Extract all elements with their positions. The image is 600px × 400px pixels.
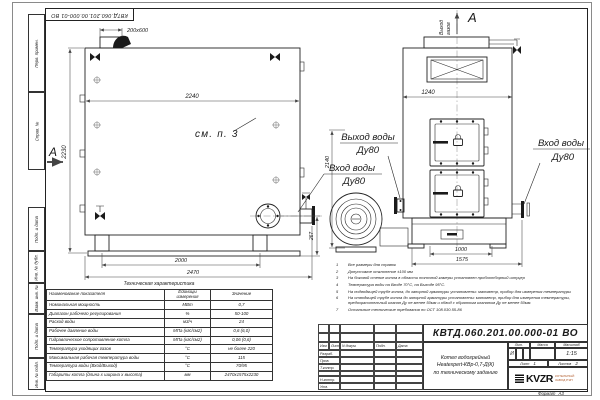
spec-cell: 0,06 (0,6) [211, 336, 273, 345]
drain-valve [95, 206, 105, 220]
titleblock-scale-value: 1:15 [555, 348, 588, 360]
side-view: см. п. 3 А 200х600 2240 2230 2000 [47, 28, 322, 280]
tb-col-izm: Изм [318, 342, 329, 350]
spec-row: Гидравлическое сопротивление котлаМПа (к… [47, 336, 273, 345]
tb-cell [396, 333, 423, 342]
hinge-tab [80, 205, 85, 212]
format-value: А3 [558, 391, 563, 396]
tb-cell [340, 376, 374, 383]
tb-cell [340, 364, 374, 371]
note-text: Допустимое отклонение ±100 мм [348, 270, 592, 275]
kvzr-logo-icon [515, 374, 524, 383]
tb-col-podp: Подп. [374, 342, 396, 350]
logo-sub-line: ЗАВОД РЭП [555, 378, 573, 382]
tb-cell [340, 357, 374, 364]
tb-cell [374, 350, 396, 357]
spec-cell: 50-100 [211, 310, 273, 319]
tb-row-utv: Утв. [318, 383, 340, 390]
tb-cell [523, 348, 530, 360]
note-text: Остальные технические требования по ОСТ … [348, 308, 592, 313]
dim-flue: 200х600 [126, 28, 149, 34]
tb-cell [374, 376, 396, 383]
tb-row-razrab: Разраб. [318, 350, 340, 357]
note-text: На отводящей трубе котла до запорной арм… [348, 296, 592, 305]
tb-col-list: Лист [329, 342, 340, 350]
spec-row: Расход водым3/ч24 [47, 318, 273, 327]
note-number: 5 [336, 290, 348, 295]
note-text: Температура воды на Входе 70°С, на Выход… [348, 283, 592, 288]
tb-cell [340, 383, 374, 390]
tb-cell [318, 333, 329, 342]
water-out-title: Выход воды [341, 132, 394, 143]
spec-cell: не более 220 [211, 345, 273, 354]
tb-col-data: Дата [396, 342, 423, 350]
spec-row: Номинальная мощностьМВт0,7 [47, 301, 273, 310]
dim-front-base-inner: 1000 [455, 247, 468, 253]
spec-cell: мм [165, 371, 211, 380]
tb-cell [396, 383, 423, 390]
flue-collar [424, 37, 489, 48]
see-note-label: см. п. 3 [195, 129, 239, 140]
note-number: 2 [336, 270, 348, 275]
note-item: 7Остальные технические требования по ОСТ… [336, 308, 592, 313]
kvzr-logo-subtext: КОТЕЛЬНЫЙ ЗАВОД РЭП [555, 375, 581, 382]
titleblock-lit-value: И [508, 348, 516, 360]
spec-header-name: Наименование показателя [47, 289, 165, 301]
spec-cell: МПа (кгс/см2) [165, 336, 211, 345]
water-in-label: Вход воды Ду80 [298, 163, 382, 212]
gas-out-label-1: Выход [439, 20, 445, 35]
water-in-dn: Ду80 [342, 176, 366, 187]
note-number: 7 [336, 308, 348, 313]
tb-row-tkontr: Т.контр. [318, 364, 340, 371]
note-number: 6 [336, 296, 348, 305]
tb-cell [374, 357, 396, 364]
dim-width: 2240 [184, 94, 199, 100]
spec-table-title: Техническая характеристика [46, 281, 272, 287]
spec-table-block: Техническая характеристика Наименование … [46, 281, 272, 381]
front-right-flange [512, 201, 530, 218]
sheets-value: 2 [575, 361, 577, 366]
spec-cell: 24 [211, 318, 273, 327]
dim-flange-height: 267 [309, 232, 315, 242]
titleblock-name: Котел водогрейный Heatexpert-КВр-0,7-Д(К… [423, 342, 508, 390]
upper-door [430, 119, 488, 166]
spec-cell: Габариты котла (длина х ширина х высота) [47, 371, 165, 380]
flue-elbow [113, 36, 131, 48]
note-text: На боковой стенке котла в области топочн… [348, 276, 592, 281]
format-word: Формат [538, 391, 555, 396]
tb-col-dokum: N докум. [340, 342, 374, 350]
titleblock-sheets: Листов 2 [548, 360, 588, 367]
note-number: 3 [336, 276, 348, 281]
spec-header-value: Значение [211, 289, 273, 301]
spec-cell: °С [165, 354, 211, 363]
product-name-line: по техническому заданию [433, 370, 497, 377]
spec-cell: °С [165, 362, 211, 371]
spec-cell: Максимальная рабочая температура воды [47, 354, 165, 363]
dim-base-inner: 2000 [174, 258, 188, 264]
padlock-icon [454, 135, 463, 146]
spec-cell: Рабочее давление воды [47, 327, 165, 336]
tb-cell [396, 350, 423, 357]
spec-cell: Температура уходящих газов [47, 345, 165, 354]
top-pipe-valve [489, 39, 521, 54]
spec-cell: 2470х1575х2230 [211, 371, 273, 380]
tb-cell [516, 348, 523, 360]
tb-cell [396, 376, 423, 383]
title-block-revision-table: Изм Лист N докум. Подп. Дата Разраб. Про… [318, 324, 423, 390]
tb-cell [374, 324, 396, 333]
gas-out-label-2: газов [446, 22, 452, 35]
front-left-flange [394, 197, 404, 214]
note-item: 2Допустимое отклонение ±100 мм [336, 270, 592, 275]
dim-base-outer: 2470 [186, 270, 200, 276]
hinge-tab [80, 95, 85, 102]
titleblock-sheet: Лист 1 [508, 360, 548, 367]
dim-height: 2230 [62, 145, 68, 160]
bracket-tab [300, 62, 304, 71]
hinge-tab [80, 150, 85, 157]
kvzr-logo-text: KVZR [526, 373, 553, 385]
safety-valve-icon [270, 53, 280, 61]
spec-header-row: Наименование показателя Единицы измерени… [47, 289, 273, 301]
titleblock-logo: KVZR КОТЕЛЬНЫЙ ЗАВОД РЭП [508, 367, 588, 390]
spec-cell: МВт [165, 301, 211, 310]
tb-cell [396, 324, 423, 333]
note-item: 4Температура воды на Входе 70°С, на Выхо… [336, 283, 592, 288]
water-in-right-label: Вход воды Ду80 [524, 138, 590, 204]
tb-cell [329, 333, 340, 342]
note-number: 1 [336, 263, 348, 268]
sheet-value: 1 [533, 361, 535, 366]
note-text: Все размеры для справок [348, 263, 592, 268]
safety-valve-icon [90, 53, 100, 61]
spec-cell: % [165, 310, 211, 319]
spec-cell: 70/95 [211, 362, 273, 371]
tb-cell [318, 324, 329, 333]
see-note-leader [234, 118, 256, 131]
door-handle [433, 192, 448, 195]
title-block: Изм Лист N докум. Подп. Дата Разраб. Про… [318, 324, 588, 390]
note-item: 1Все размеры для справок [336, 263, 592, 268]
spec-cell: 115 [211, 354, 273, 363]
boiler-leg [253, 235, 267, 251]
spec-cell: Температура воды (Вход/Выход) [47, 362, 165, 371]
water-in-right-title: Вход воды [538, 138, 584, 149]
tb-cell [329, 324, 340, 333]
side-view-dimensions: 200х600 2240 2230 2000 2470 267 [62, 28, 320, 280]
note-number: 4 [336, 283, 348, 288]
spec-header-units: Единицы измерения [165, 289, 211, 301]
sheet-label: Лист [520, 362, 529, 366]
water-in-title: Вход воды [329, 163, 375, 174]
padlock-icon [454, 186, 463, 197]
spec-cell: °С [165, 345, 211, 354]
spec-cell: м3/ч [165, 318, 211, 327]
boiler-leg [95, 235, 109, 251]
format-label: Формат А3 [538, 391, 564, 396]
spec-cell: 0,6 (6,0) [211, 327, 273, 336]
door-handle [433, 141, 448, 144]
spec-row: Температура уходящих газов°Сне более 220 [47, 345, 273, 354]
spec-cell: Гидравлическое сопротивление котла [47, 336, 165, 345]
drawing-sheet: Перв. примен. Справ. № Подп. и дата Инв.… [0, 0, 600, 400]
tb-cell [374, 383, 396, 390]
tb-cell [340, 333, 374, 342]
product-name-line: Heatexpert-КВр-0,7-Д(К) [437, 362, 494, 369]
spec-cell: Расход воды [47, 318, 165, 327]
water-out-dn: Ду80 [356, 145, 380, 156]
spec-row: Рабочее давление водыМПа (кгс/см2)0,6 (6… [47, 327, 273, 336]
product-name-line: Котел водогрейный [441, 355, 490, 362]
tb-row-prov: Пров. [318, 357, 340, 364]
tb-row-nkontr: Н.контр. [318, 376, 340, 383]
spec-row: Габариты котла (длина х ширина х высота)… [47, 371, 273, 380]
titleblock-mass-value [530, 348, 555, 360]
note-item: 3На боковой стенке котла в области топоч… [336, 276, 592, 281]
note-item: 6На отводящей трубе котла до запорной ар… [336, 296, 592, 305]
notes-block: 1Все размеры для справок 2Допустимое отк… [336, 263, 592, 314]
spec-row: Диапазон рабочего регулирования%50-100 [47, 310, 273, 319]
tb-cell [340, 350, 374, 357]
view-a-label: А [467, 10, 477, 25]
spec-row: Температура воды (Вход/Выход)°С70/95 [47, 362, 273, 371]
spec-cell: Диапазон рабочего регулирования [47, 310, 165, 319]
spec-cell: Номинальная мощность [47, 301, 165, 310]
tb-cell [340, 324, 374, 333]
note-text: На подводящей трубе котла, до запорной а… [348, 290, 592, 295]
lower-door [430, 170, 488, 217]
sheets-label: Листов [558, 362, 571, 366]
water-in-right-dn: Ду80 [551, 152, 575, 163]
spec-table: Наименование показателя Единицы измерени… [46, 289, 273, 381]
dim-front-width: 1240 [421, 90, 435, 96]
lifting-eyes [93, 76, 280, 184]
note-item: 5На подводящей трубе котла, до запорной … [336, 290, 592, 295]
front-view: Выход газов А 1240 [394, 10, 590, 267]
water-flange-side [250, 193, 322, 228]
tb-cell [374, 364, 396, 371]
section-a-label: А [48, 145, 57, 159]
tb-cell [374, 333, 396, 342]
spec-cell: МПа (кгс/см2) [165, 327, 211, 336]
titleblock-designation: КВТД.060.201.00.000-01 ВО [423, 324, 588, 342]
base-rail [88, 251, 300, 256]
bracket-tab [300, 168, 304, 177]
tb-cell [396, 364, 423, 371]
spec-row: Максимальная рабочая температура воды°С1… [47, 354, 273, 363]
boiler-body-front [403, 48, 512, 218]
spec-cell: 0,7 [211, 301, 273, 310]
tb-cell [396, 357, 423, 364]
